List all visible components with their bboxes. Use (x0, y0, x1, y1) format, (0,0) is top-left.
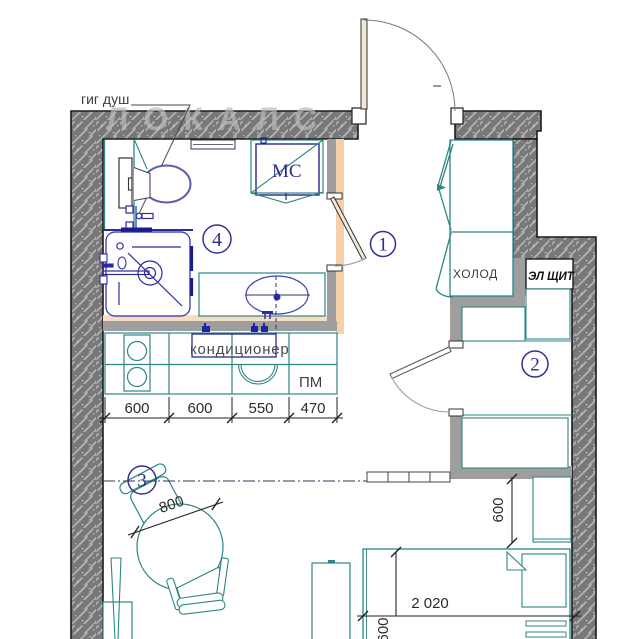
svg-text:4: 4 (212, 229, 222, 251)
svg-text:ЛОКАЛС: ЛОКАЛС (106, 101, 332, 137)
svg-text:550: 550 (248, 400, 273, 417)
svg-text:470: 470 (300, 400, 325, 417)
svg-text:2 020: 2 020 (411, 595, 449, 612)
svg-text:1: 1 (378, 235, 388, 256)
svg-text:гиг душ: гиг душ (81, 91, 129, 107)
svg-text:МС: МС (272, 161, 302, 182)
svg-text:600: 600 (490, 497, 507, 522)
svg-text:ХОЛОД: ХОЛОД (453, 267, 498, 281)
svg-text:600: 600 (187, 400, 212, 417)
svg-text:600: 600 (124, 400, 149, 417)
svg-text:ПМ: ПМ (299, 374, 322, 391)
svg-text:ЭЛ ЩИТ: ЭЛ ЩИТ (528, 271, 575, 283)
svg-text:кондиционер: кондиционер (190, 341, 290, 358)
svg-text:3: 3 (137, 471, 147, 492)
svg-text:600: 600 (375, 617, 392, 639)
svg-text:2: 2 (530, 355, 540, 376)
